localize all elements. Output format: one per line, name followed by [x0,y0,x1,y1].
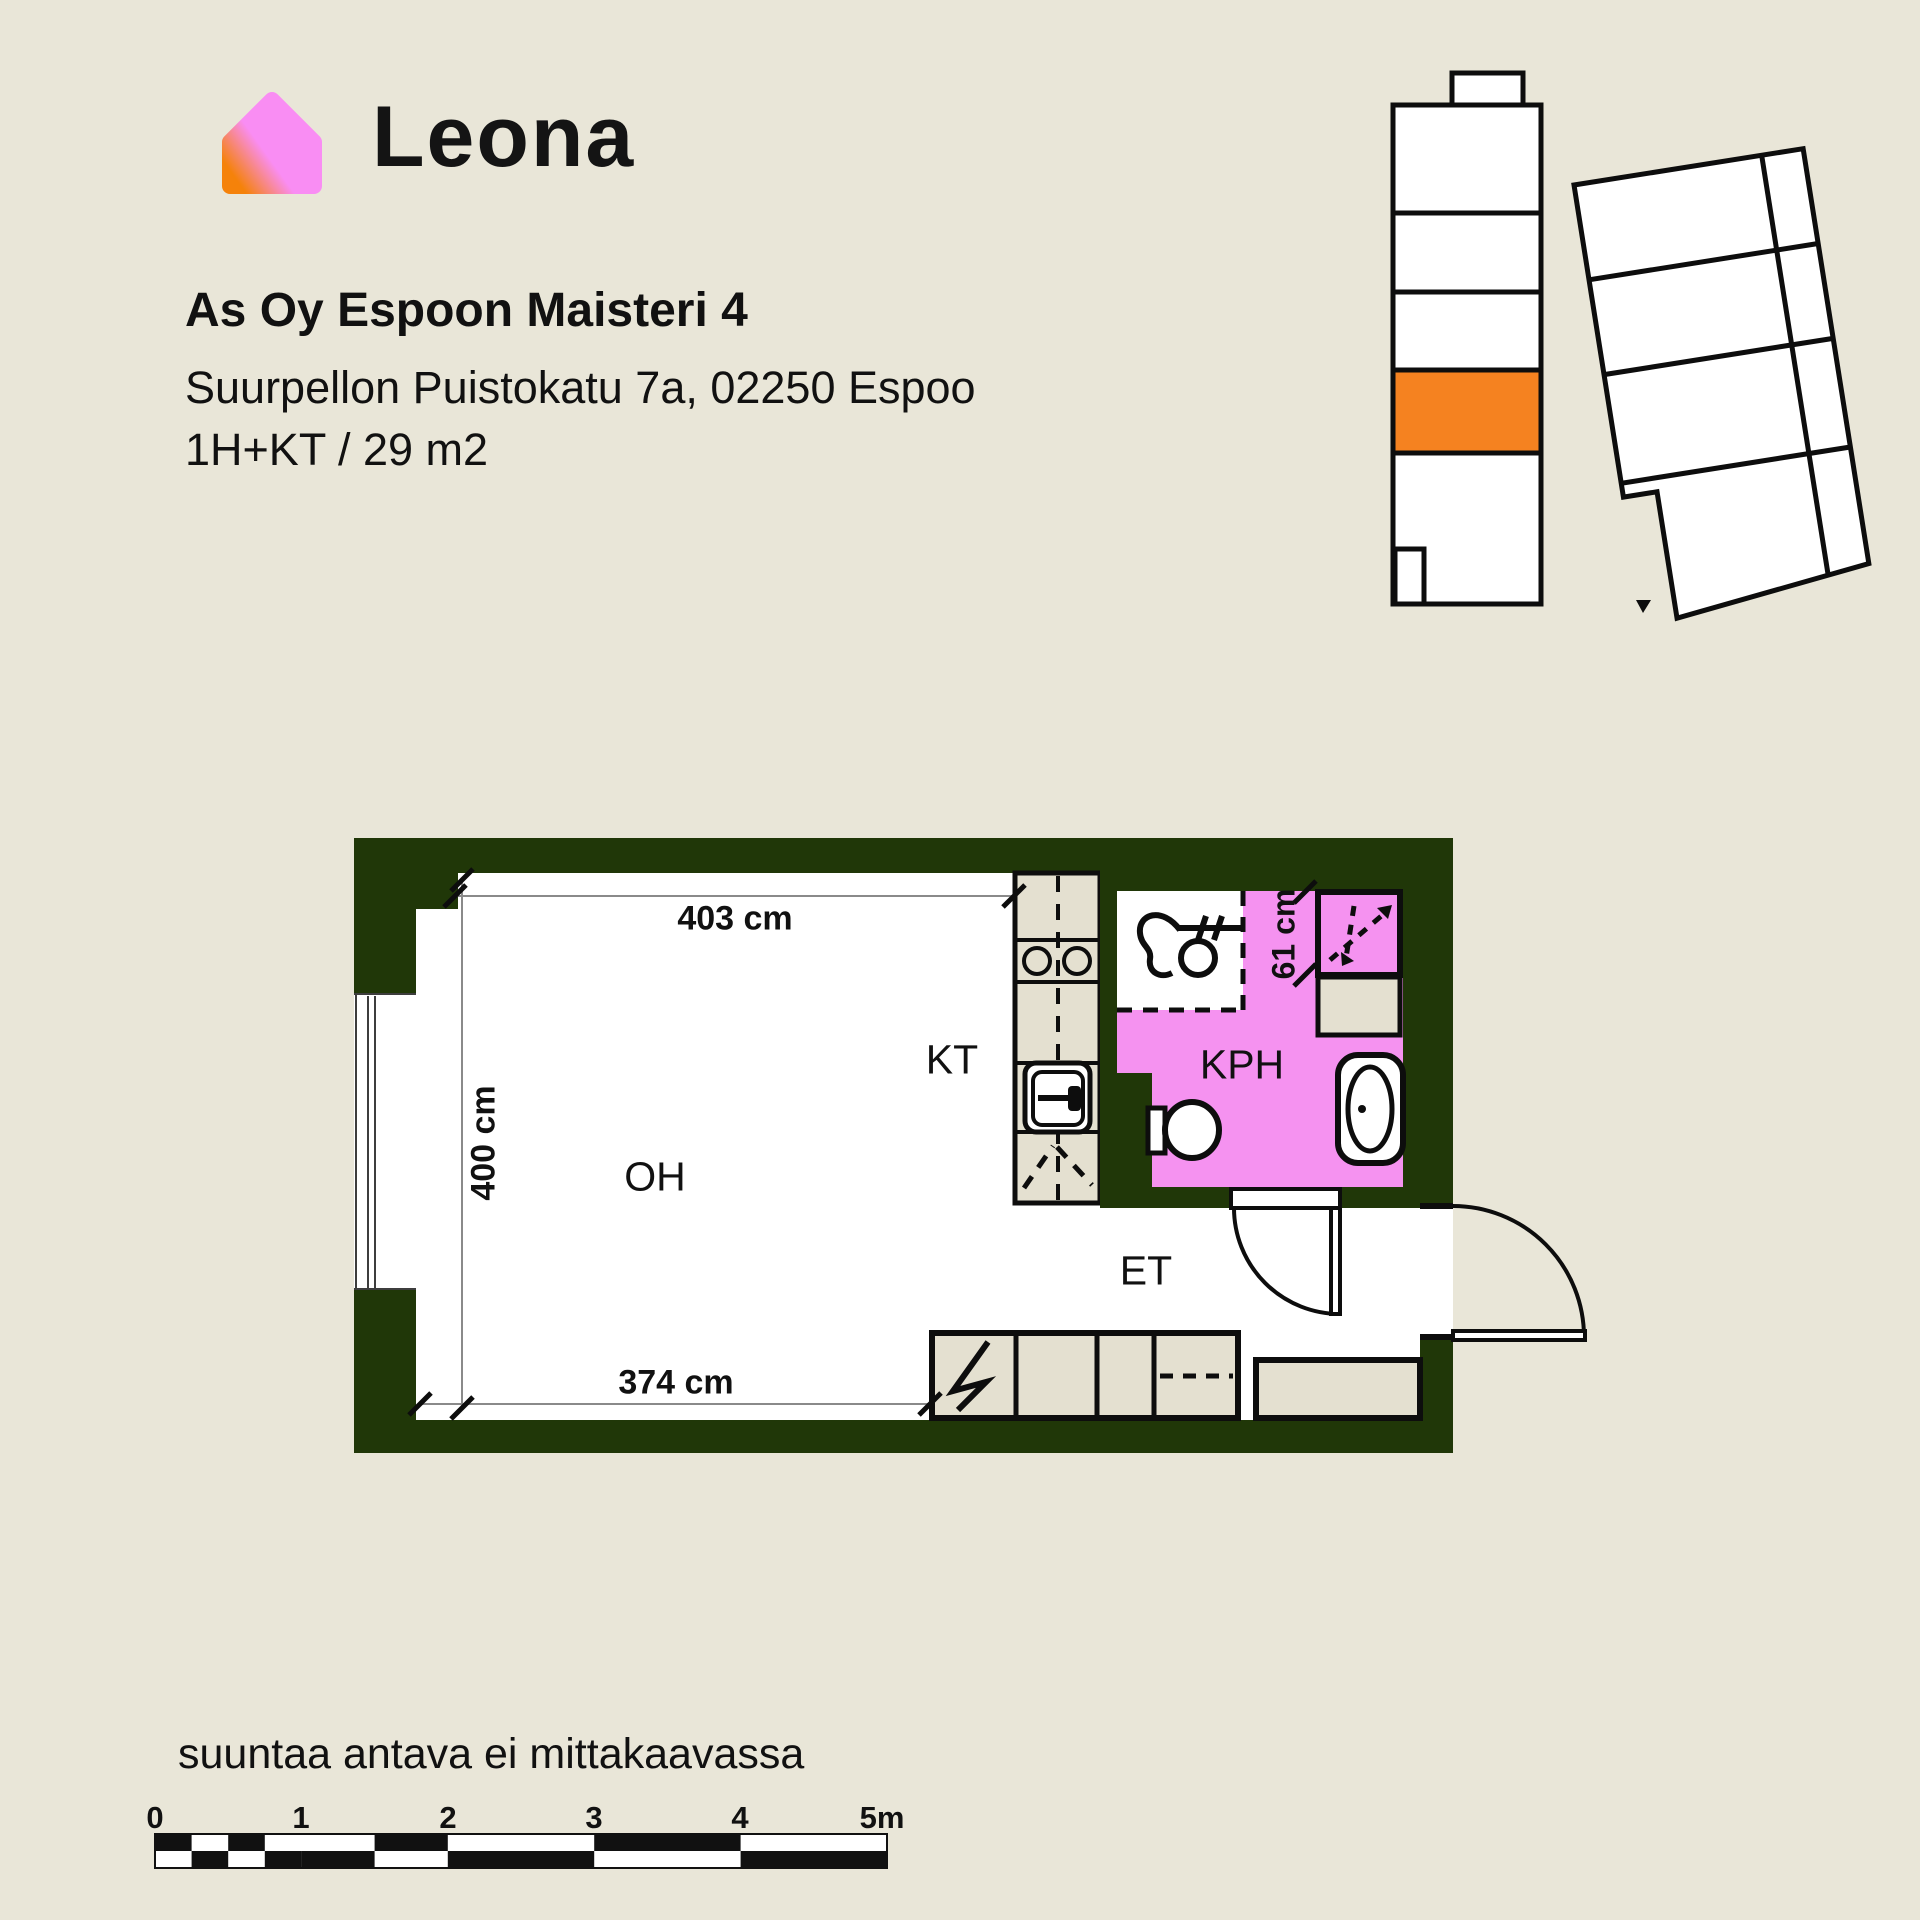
page-title: As Oy Espoon Maisteri 4 [185,283,748,338]
room-label-living-room: OH [624,1154,686,1201]
site-plan-stair-notch [1395,549,1424,604]
kitchen-sink-icon [1025,1063,1090,1132]
dimension-top-width: 403 cm [677,900,792,939]
site-plan-highlighted-unit [1393,370,1541,453]
property-address: Suurpellon Puistokatu 7a, 02250 Espoo [185,362,976,414]
site-plan-left-tower [1393,105,1541,604]
dimension-left-height: 400 cm [465,1085,504,1200]
site-plan-pointer-mark [1636,600,1651,613]
apartment-type: 1H+KT / 29 m2 [185,424,488,476]
room-label-hallway: ET [1120,1248,1172,1295]
bathroom-cabinet [1318,977,1400,1035]
scale-bar [155,1834,887,1868]
leona-house-logo-icon [214,86,334,206]
door-leaf [1453,1331,1585,1340]
washing-machine-reservation [1117,891,1243,1010]
scale-disclaimer-note: suuntaa antava ei mittakaavassa [178,1730,804,1779]
bathroom-sink-icon [1338,1055,1403,1163]
brand-name: Leona [372,88,635,187]
window [354,993,416,1290]
toilet-icon [1148,1102,1219,1158]
room-label-bathroom: KPH [1200,1042,1284,1089]
scale-label-0: 0 [146,1800,163,1836]
site-plan-diagram [1393,73,1873,624]
scale-label-3: 3 [585,1800,602,1836]
site-plan-roof-box [1452,73,1523,107]
scale-label-2: 2 [439,1800,456,1836]
door-swing-arc [1453,1206,1584,1337]
floor-plan-sheet: Leona As Oy Espoon Maisteri 4 Suurpellon… [0,0,1920,1920]
room-label-kitchenette: KT [926,1037,978,1084]
shower-area [1318,892,1400,975]
dimension-bottom-width: 374 cm [618,1364,733,1403]
kitchen-cabinet-strip [1015,873,1100,1203]
scale-label-1: 1 [292,1800,309,1836]
scale-label-4: 4 [731,1800,748,1836]
door-leaf [1331,1208,1340,1314]
site-plan-tilted-building [1574,149,1873,624]
dimension-shower-width: 61 cm [1266,889,1303,980]
closet-bench [1256,1360,1420,1418]
scale-label-5m: 5m [860,1800,905,1836]
entrance-door [1420,1206,1585,1340]
